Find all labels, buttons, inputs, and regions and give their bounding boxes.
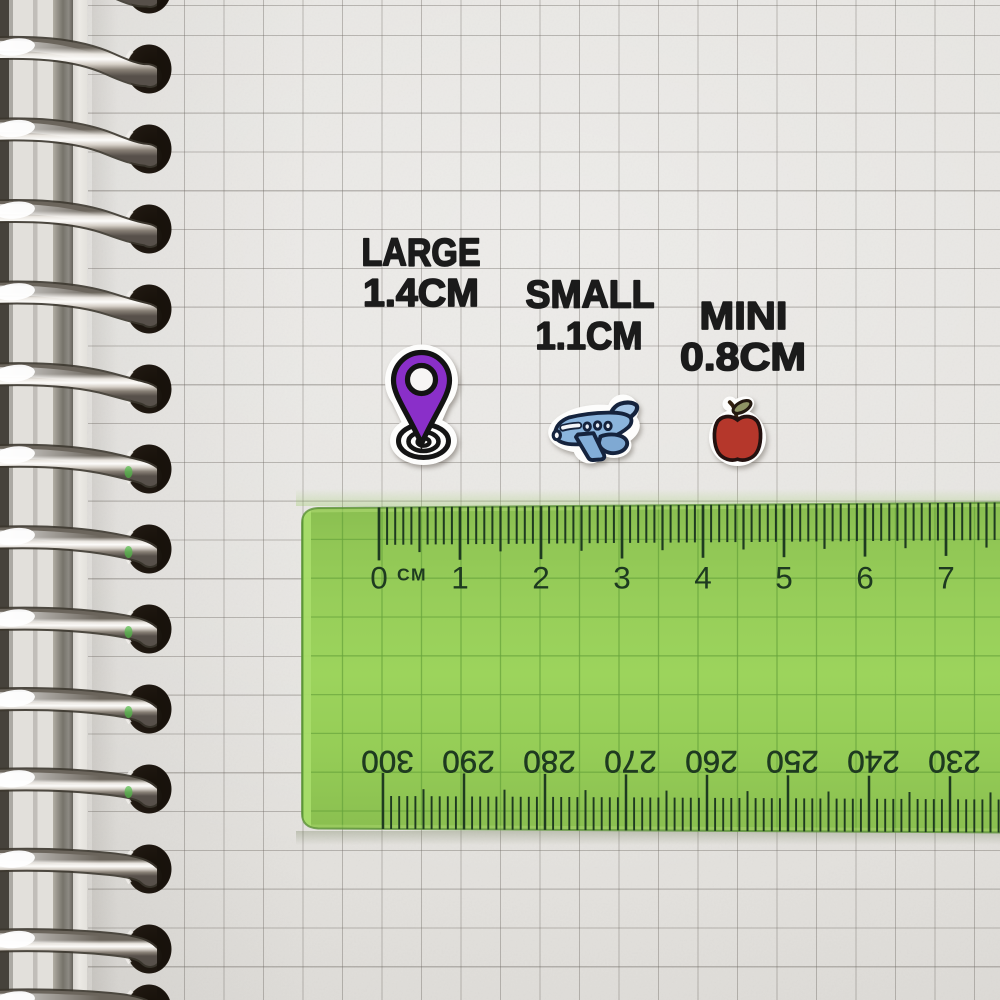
svg-text:280: 280: [523, 744, 576, 780]
svg-text:CM: CM: [397, 565, 427, 585]
svg-text:240: 240: [847, 744, 900, 780]
svg-text:1.4CM: 1.4CM: [363, 272, 479, 315]
svg-text:3: 3: [613, 560, 631, 596]
svg-text:260: 260: [685, 744, 738, 780]
svg-text:MINI: MINI: [700, 295, 788, 338]
svg-text:SMALL: SMALL: [526, 274, 655, 317]
svg-text:2: 2: [532, 560, 550, 596]
svg-text:290: 290: [442, 744, 495, 780]
svg-text:LARGE: LARGE: [362, 232, 481, 275]
svg-text:300: 300: [361, 744, 414, 780]
svg-text:1: 1: [451, 560, 469, 596]
svg-text:250: 250: [766, 744, 819, 780]
svg-text:5: 5: [775, 560, 793, 596]
svg-text:0.8CM: 0.8CM: [680, 336, 806, 379]
svg-text:7: 7: [937, 560, 955, 596]
svg-text:6: 6: [856, 560, 874, 596]
svg-text:1.1CM: 1.1CM: [536, 315, 643, 358]
svg-text:4: 4: [694, 560, 712, 596]
svg-text:230: 230: [928, 744, 981, 780]
svg-text:270: 270: [604, 744, 657, 780]
svg-text:0: 0: [370, 560, 388, 596]
